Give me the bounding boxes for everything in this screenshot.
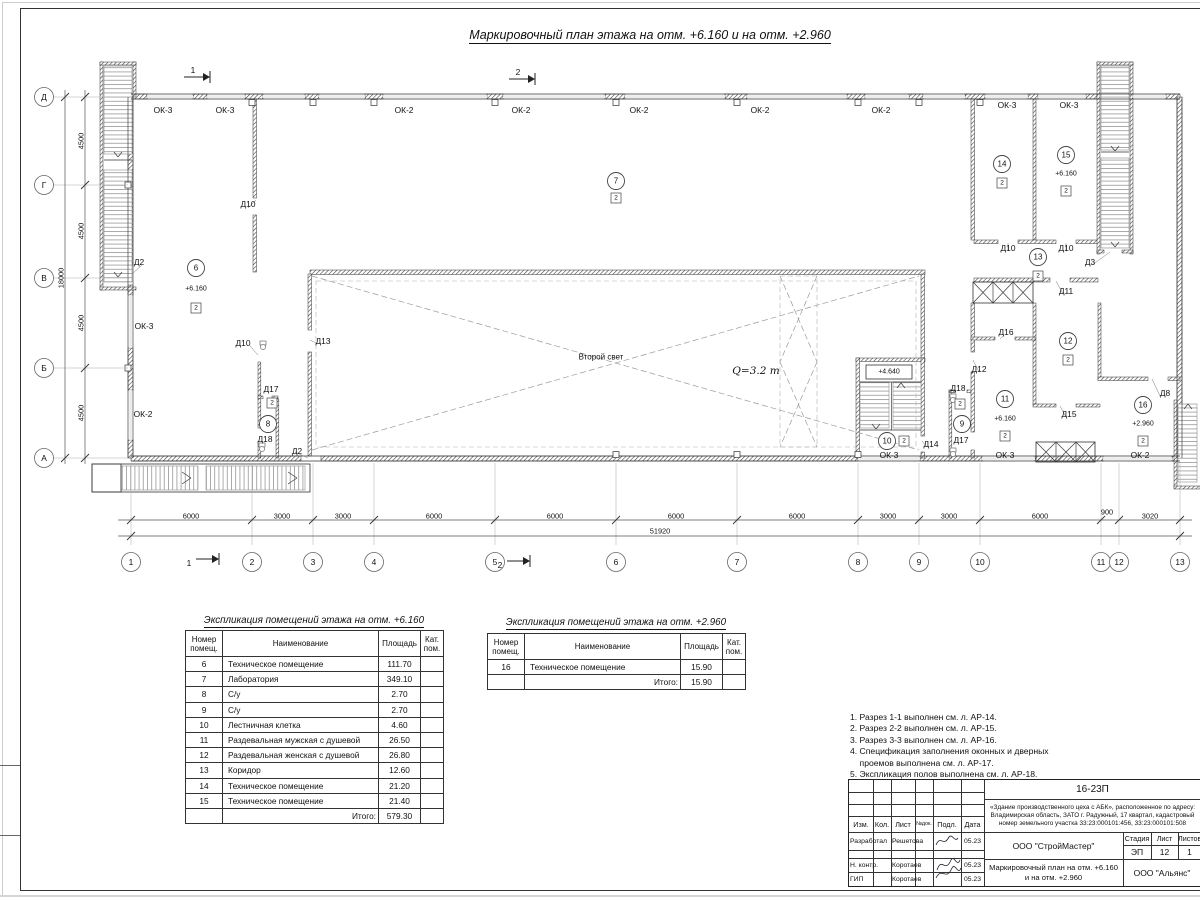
tb-name-developer: Решетова [892, 832, 933, 850]
axis-number: 4 [372, 557, 377, 567]
tb-col-izm: Изм. [849, 816, 873, 832]
column-marker [613, 100, 619, 106]
table-row: 11Раздевальная мужская с душевой26.50 [186, 732, 444, 747]
entrance-stair [121, 466, 198, 490]
room-category: 2 [1141, 438, 1145, 445]
room-number: 16 [1139, 401, 1148, 410]
room-elevation: +6.160 [185, 286, 207, 293]
room-number: 6 [194, 264, 199, 273]
wall [909, 94, 923, 99]
wall [1033, 99, 1036, 240]
schedule-title-2960: Экспликация помещений этажа на отм. +2.9… [487, 617, 745, 628]
wall [1174, 400, 1177, 488]
signatures [932, 832, 962, 886]
window-label: ОК-3 [216, 105, 235, 115]
tb-stage-value: ЭП [1123, 845, 1151, 859]
dimension-text: 3000 [335, 512, 351, 521]
tb-col-podl: Подл. [933, 816, 961, 832]
tb-date-gip: 05.23 [961, 872, 984, 886]
wall [965, 94, 985, 99]
wall [921, 274, 925, 358]
window-label: ОК-3 [880, 450, 899, 460]
tb-name-gip: Коротаев [892, 872, 933, 886]
entrance-stair [206, 466, 305, 490]
wall [1174, 486, 1200, 489]
window [147, 95, 193, 98]
axis-number: 9 [917, 557, 922, 567]
wall [193, 94, 207, 99]
room-category: 2 [1066, 357, 1070, 364]
door-label: Д10 [1059, 243, 1074, 253]
room-number: 11 [1001, 395, 1010, 404]
second-light-label: Второй свет [579, 353, 624, 362]
column-marker [855, 100, 861, 106]
window-label: ОК-3 [154, 105, 173, 115]
stair-landing-elevation: +4.640 [878, 369, 900, 376]
window-label: ОК-3 [996, 450, 1015, 460]
section-arrow [523, 557, 530, 565]
wall [321, 456, 858, 461]
schedule-total-row: Итого: 579.30 [186, 808, 444, 823]
column-marker [734, 452, 740, 458]
axis-letter: А [41, 453, 47, 463]
section-arrow [203, 73, 210, 81]
wall [1076, 240, 1098, 244]
wall [1086, 94, 1097, 99]
window [263, 95, 305, 98]
tb-project-description: «Здание производственного цеха с АБК», р… [987, 799, 1198, 832]
window [503, 95, 605, 98]
window [1133, 95, 1166, 98]
wall [100, 62, 103, 290]
window [625, 95, 725, 98]
table-row: 15Техническое помещение21.40 [186, 793, 444, 808]
section-arrow [212, 555, 219, 563]
dimension-text: 3000 [274, 512, 290, 521]
window-label: ОК-2 [1131, 450, 1150, 460]
wall [974, 278, 1034, 282]
room-schedule-2960: Номер помещ.Наименование ПлощадьКат. пом… [487, 633, 746, 690]
wall [253, 215, 257, 272]
door-label: Д8 [1160, 388, 1171, 398]
wall [971, 99, 975, 240]
note-line: 1. Разрез 1-1 выполнен см. л. АР-14. [850, 712, 1180, 723]
column-marker [734, 100, 740, 106]
section-number: 1 [187, 558, 192, 568]
wall [305, 94, 319, 99]
room-schedule-6160: Номер помещ.Наименование ПлощадьКат. пом… [185, 630, 444, 824]
door-label: Д17 [264, 384, 279, 394]
tb-organization: ООО "СтройМастер" [984, 832, 1123, 859]
tb-col-ndok: №док. [915, 816, 933, 832]
column-marker [249, 100, 255, 106]
wall [847, 94, 865, 99]
axis-number: 13 [1175, 557, 1185, 567]
axis-number: 8 [856, 557, 861, 567]
crane-capacity-label: Q=3.2 т [732, 365, 779, 377]
tb-sheet-value: 12 [1151, 845, 1178, 859]
drawing-sheet: Маркировочный план этажа на отм. +6.160 … [0, 0, 1200, 900]
table-row: 10Лестничная клетка4.60 [186, 717, 444, 732]
wall [1097, 62, 1100, 254]
stair-flight [1178, 404, 1197, 482]
stair-flight [1101, 66, 1129, 150]
wall [605, 94, 625, 99]
stair-flight [893, 382, 921, 428]
schedule-header: Номер помещ.Наименование ПлощадьКат. пом… [186, 631, 444, 657]
dimension-text: 4500 [77, 133, 86, 149]
window [319, 95, 365, 98]
wall [245, 94, 263, 99]
room-number: 10 [883, 437, 892, 446]
wall [1098, 377, 1148, 381]
axis-number: 10 [975, 557, 985, 567]
wall [971, 372, 975, 432]
wall [308, 352, 312, 456]
wall [131, 456, 301, 461]
wall [258, 362, 261, 396]
wall [1076, 404, 1100, 407]
axis-letter: Г [42, 180, 47, 190]
tb-client: ООО "Альянс" [1123, 859, 1200, 886]
section-arrow [528, 75, 535, 83]
wall [971, 450, 975, 458]
table-row: 14Техническое помещение21.20 [186, 778, 444, 793]
window [923, 95, 965, 98]
dimension-total: 18000 [57, 268, 66, 289]
window [207, 95, 245, 98]
wall [1130, 62, 1133, 254]
column-marker [371, 100, 377, 106]
tb-doc-number: 16-23П [984, 780, 1200, 799]
wall [1035, 456, 1103, 461]
wall [1033, 303, 1036, 404]
wall [487, 94, 503, 99]
stair-flight [1101, 158, 1129, 248]
axis-number: 12 [1114, 557, 1124, 567]
table-row: 9С/у2.70 [186, 702, 444, 717]
dimension-text: 3000 [880, 512, 896, 521]
dimension-text: 6000 [789, 512, 805, 521]
wall [725, 94, 747, 99]
room-number: 7 [614, 177, 619, 186]
tb-date-developer: 05.23 [961, 832, 984, 850]
window-label: ОК-2 [395, 105, 414, 115]
door-label: Д18 [258, 434, 273, 444]
axis-number: 11 [1097, 557, 1106, 567]
wall [100, 62, 136, 65]
dashed-rect [316, 281, 916, 447]
dimension-text: 4500 [77, 223, 86, 239]
door-label: Д11 [1059, 286, 1074, 296]
wall [1015, 337, 1035, 340]
room-number: 9 [960, 420, 965, 429]
door-label: Д17 [954, 435, 969, 445]
window-label: ОК-3 [1060, 100, 1079, 110]
wall [1098, 303, 1101, 380]
tb-name-ncontrol: Коротаев [892, 858, 933, 872]
dimension-text: 900 [1101, 508, 1113, 517]
wall [974, 240, 998, 244]
window [129, 390, 132, 440]
dimension-total: 51920 [650, 527, 671, 536]
wall [1168, 377, 1180, 381]
wall [308, 274, 312, 330]
wall [971, 303, 975, 352]
room-category: 2 [902, 438, 906, 445]
dashed-rect [780, 276, 817, 447]
dimension-text: 6000 [183, 512, 199, 521]
schedule-header: Номер помещ.Наименование ПлощадьКат. пом… [488, 634, 746, 660]
tb-col-list: Лист [891, 816, 915, 832]
tb-sheets-value: 1 [1178, 845, 1200, 859]
wall [1033, 404, 1056, 407]
room-category: 2 [1064, 188, 1068, 195]
dimension-text: 6000 [426, 512, 442, 521]
door-label: Д10 [1001, 243, 1016, 253]
wall [856, 358, 925, 362]
floor-plan: 12345678910111213ДГВБА600030003000600060… [0, 0, 1200, 620]
room-category: 2 [958, 401, 962, 408]
room-number: 13 [1034, 253, 1043, 262]
wall [128, 440, 133, 458]
note-line: 3. Разрез 3-3 выполнен см. л. АР-16. [850, 735, 1180, 746]
window-label: ОК-2 [872, 105, 891, 115]
room-elevation: +6.160 [994, 416, 1016, 423]
axis-number: 6 [614, 557, 619, 567]
door-label: Д3 [1085, 257, 1096, 267]
window-label: ОК-3 [998, 100, 1017, 110]
axis-letter: В [41, 273, 47, 283]
shaft [92, 464, 121, 492]
room-category: 2 [614, 195, 618, 202]
column-marker [492, 100, 498, 106]
notes-list: 1. Разрез 1-1 выполнен см. л. АР-14.2. Р… [850, 712, 1180, 780]
tb-sheet-label: Лист [1151, 832, 1178, 845]
door-label: Д18 [951, 383, 966, 393]
dimension-text: 6000 [1032, 512, 1048, 521]
note-line: проемов выполнена см. л. АР-17. [850, 758, 1180, 769]
window [747, 95, 847, 98]
window-label: ОК-2 [512, 105, 531, 115]
tb-role-developer: Разработал [850, 832, 892, 850]
dimension-text: 3020 [1142, 512, 1158, 521]
tb-stage-label: Стадия [1123, 832, 1151, 845]
axis-number: 3 [311, 557, 316, 567]
door-label: Д10 [236, 338, 251, 348]
column-marker [310, 100, 316, 106]
table-row: 12Раздевальная женская с душевой26.80 [186, 748, 444, 763]
axis-number: 2 [250, 557, 255, 567]
frame-tick [0, 765, 20, 766]
door-label: Д16 [999, 327, 1014, 337]
dimension-text: 4500 [77, 315, 86, 331]
window-label: ОК-2 [134, 409, 153, 419]
window-label: ОК-2 [630, 105, 649, 115]
door-label: Д12 [972, 364, 987, 374]
window [1038, 95, 1086, 98]
room-category: 2 [1036, 273, 1040, 280]
title-block: Изм. Кол. Лист №док. Подл. Дата Разработ… [848, 779, 1200, 887]
room-number: 12 [1064, 337, 1073, 346]
toilet [950, 451, 955, 456]
note-line: 2. Разрез 2-2 выполнен см. л. АР-15. [850, 723, 1180, 734]
column-marker [916, 100, 922, 106]
room-category: 2 [270, 400, 274, 407]
section-number: 2 [498, 560, 503, 570]
window [129, 295, 132, 348]
wall [1097, 62, 1133, 65]
wall [856, 358, 860, 458]
tb-role-ncontrol: Н. контр. [850, 858, 892, 872]
axis-number: 1 [129, 557, 134, 567]
column-marker [977, 100, 983, 106]
axis-number: 7 [735, 557, 740, 567]
wall [921, 452, 925, 458]
table-row: 16Техническое помещение15.90 [488, 660, 746, 675]
room-number: 14 [998, 160, 1007, 169]
plan-labels: 12345678910111213ДГВБА600030003000600060… [35, 65, 1190, 572]
wall [1097, 250, 1104, 253]
room-elevation: +6.160 [1055, 171, 1077, 178]
frame-tick [0, 835, 20, 836]
window [985, 95, 1028, 98]
dimension-text: 4500 [77, 405, 86, 421]
section-number: 2 [516, 67, 521, 77]
room-category: 2 [1003, 433, 1007, 440]
sheet-shadow [0, 895, 1200, 897]
window [865, 95, 909, 98]
stair-flight [860, 382, 889, 428]
dimension-text: 6000 [547, 512, 563, 521]
table-row: 8С/у2.70 [186, 687, 444, 702]
dimension-text: 6000 [668, 512, 684, 521]
toilet [260, 344, 265, 349]
wall [133, 62, 136, 97]
wall [365, 94, 383, 99]
dimension-text: 3000 [941, 512, 957, 521]
room-category: 2 [1000, 180, 1004, 187]
wall [971, 337, 995, 340]
schedule-title-6160: Экспликация помещений этажа на отм. +6.1… [185, 615, 443, 626]
door-leader [1152, 379, 1160, 396]
door-label: Д2 [292, 446, 303, 456]
room-elevation: +2.960 [1132, 421, 1154, 428]
schedule-total-row: Итого: 15.90 [488, 675, 746, 690]
wall [1028, 94, 1038, 99]
room-number: 15 [1062, 151, 1071, 160]
wall [258, 396, 263, 399]
tb-col-data: Дата [961, 816, 984, 832]
toilet [259, 446, 264, 451]
column-marker [855, 452, 861, 458]
wall [921, 358, 925, 436]
door-leader [250, 346, 258, 355]
wall [1018, 240, 1056, 244]
tb-col-kol: Кол. [873, 816, 891, 832]
table-row: 6Техническое помещение111.70 [186, 657, 444, 672]
window [383, 95, 487, 98]
door-label: Д15 [1062, 409, 1077, 419]
tb-date-ncontrol: 05.23 [961, 858, 984, 872]
tb-drawing-title: Маркировочный план на отм. +6.160 и на о… [987, 859, 1120, 886]
table-row: 13Коридор12.60 [186, 763, 444, 778]
door-label: Д2 [134, 257, 145, 267]
wall [100, 287, 136, 290]
column-marker [613, 452, 619, 458]
window-label: ОК-3 [135, 321, 154, 331]
table-row: 7Лаборатория349.10 [186, 672, 444, 687]
room-number: 8 [266, 420, 271, 429]
axis-letter: Б [41, 363, 47, 373]
door-label: Д13 [316, 336, 331, 346]
door-label: Д10 [241, 199, 256, 209]
window-label: ОК-2 [751, 105, 770, 115]
plan-linework [40, 62, 1200, 567]
wall [310, 270, 925, 275]
axis-letter: Д [41, 92, 47, 102]
room-category: 2 [194, 305, 198, 312]
tb-role-gip: ГИП [850, 872, 892, 886]
wall [1122, 250, 1133, 253]
wall [253, 99, 257, 198]
wall [1070, 278, 1098, 282]
note-line: 4. Спецификация заполнения оконных и две… [850, 746, 1180, 757]
tb-sheets-label: Листов [1178, 832, 1200, 845]
door-label: Д14 [924, 439, 939, 449]
section-number: 1 [191, 65, 196, 75]
